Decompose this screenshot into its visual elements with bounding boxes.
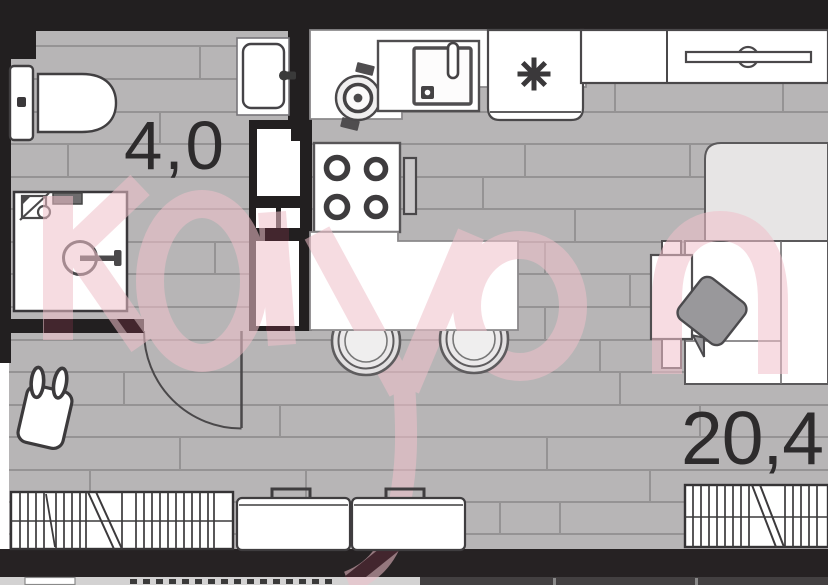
svg-text:20,4: 20,4	[681, 396, 823, 480]
svg-text:4,0: 4,0	[124, 107, 226, 184]
